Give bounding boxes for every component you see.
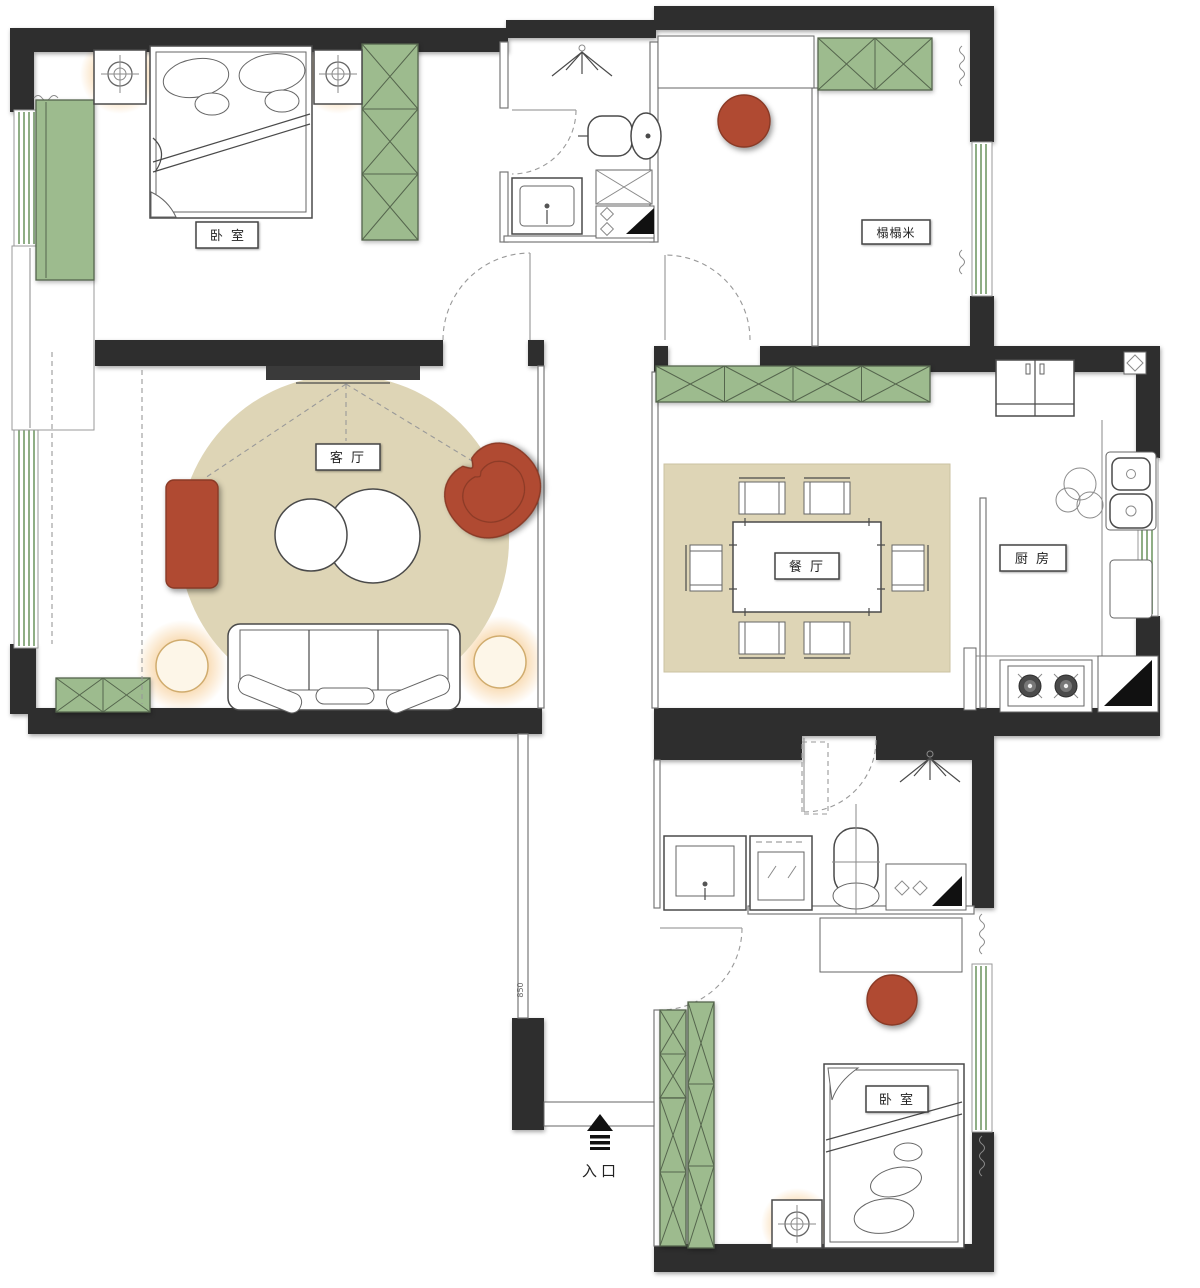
drain-cabinet bbox=[886, 864, 966, 910]
wardrobe-bedroom2-b bbox=[688, 1002, 714, 1248]
dining-chair bbox=[804, 622, 850, 658]
stove bbox=[1000, 660, 1092, 712]
stool-red bbox=[718, 95, 770, 147]
room-bedroom-master: 卧 室 bbox=[94, 46, 362, 248]
room-bathroom-top bbox=[512, 45, 661, 238]
svg-text:卧 室: 卧 室 bbox=[879, 1092, 915, 1108]
window-tatami-right bbox=[972, 142, 992, 296]
tv bbox=[266, 366, 420, 380]
wardrobe-bedroom2-a bbox=[660, 1010, 686, 1098]
floor-plan-svg: 卧 室 bbox=[0, 0, 1200, 1288]
pouf bbox=[474, 636, 526, 688]
dining-chair bbox=[739, 622, 785, 658]
door-study-nook bbox=[665, 255, 750, 340]
door-bedroom-second bbox=[660, 928, 742, 1010]
door-bathroom-top bbox=[512, 110, 576, 174]
fridge bbox=[996, 360, 1074, 416]
plant bbox=[1056, 468, 1103, 518]
room-label-tatami: 榻榻米 bbox=[862, 220, 930, 244]
door-bathroom-bottom bbox=[804, 738, 876, 812]
desk bbox=[658, 36, 814, 88]
cabinet-dining-top bbox=[656, 366, 930, 402]
dining-chair bbox=[686, 545, 722, 591]
svg-text:卧 室: 卧 室 bbox=[210, 228, 246, 244]
cabinet-tatami-top bbox=[818, 38, 932, 90]
room-living: 客 厅 bbox=[52, 352, 558, 716]
stool-red bbox=[867, 975, 917, 1025]
room-label-kitchen: 厨 房 bbox=[1000, 545, 1066, 571]
cutting-board bbox=[1110, 560, 1152, 618]
bathroom-cabinet bbox=[596, 170, 652, 204]
window-bedroom2-right bbox=[972, 964, 992, 1132]
floor-drain-unit bbox=[1098, 656, 1158, 712]
svg-text:客 厅: 客 厅 bbox=[330, 450, 366, 466]
kitchen-counter bbox=[970, 420, 1102, 656]
room-kitchen: 厨 房 bbox=[964, 352, 1158, 712]
cabinet-master-column bbox=[362, 44, 418, 240]
burner-icon bbox=[1018, 674, 1042, 698]
kitchen-sink bbox=[1106, 452, 1156, 530]
window-left-top bbox=[14, 110, 38, 246]
vanity-sink bbox=[664, 836, 746, 910]
room-label-bedroom-second: 卧 室 bbox=[866, 1086, 928, 1112]
svg-text:榻榻米: 榻榻米 bbox=[876, 226, 915, 240]
door-bedroom-master bbox=[443, 253, 530, 340]
floor-drain-unit bbox=[596, 206, 654, 238]
room-dining: 餐 厅 bbox=[664, 464, 950, 672]
wall-stub bbox=[964, 648, 976, 710]
bench-red bbox=[166, 480, 218, 588]
dining-chair bbox=[739, 478, 785, 514]
corridor-dimension: 850 bbox=[516, 982, 525, 997]
cabinet-living-corner bbox=[56, 678, 150, 712]
sofa bbox=[228, 624, 460, 716]
bed-double bbox=[150, 46, 312, 218]
shower-icon bbox=[552, 45, 612, 76]
coffee-table-small bbox=[275, 499, 347, 571]
window-left-bottom bbox=[14, 428, 38, 648]
wardrobe-bedroom2-c bbox=[660, 1098, 686, 1246]
svg-text:餐 厅: 餐 厅 bbox=[789, 559, 825, 575]
dining-chair bbox=[892, 545, 928, 591]
bathroom-sink bbox=[512, 178, 582, 234]
toilet bbox=[578, 113, 661, 159]
insulation-squiggle bbox=[960, 46, 965, 86]
entrance-label: 入口 bbox=[582, 1162, 620, 1180]
wardrobe-master-left bbox=[36, 100, 94, 280]
water-heater bbox=[832, 804, 880, 914]
insulation-squiggle bbox=[960, 250, 965, 274]
desk bbox=[820, 918, 962, 972]
vent bbox=[1124, 352, 1146, 374]
pouf bbox=[156, 640, 208, 692]
duct bbox=[802, 742, 828, 814]
room-label-bedroom-master: 卧 室 bbox=[196, 222, 258, 248]
room-bathroom-bottom bbox=[664, 742, 966, 914]
room-label-dining: 餐 厅 bbox=[775, 553, 839, 579]
burner-icon bbox=[1054, 674, 1078, 698]
svg-text:厨 房: 厨 房 bbox=[1015, 551, 1051, 567]
washing-machine bbox=[750, 836, 812, 910]
dining-chair bbox=[804, 478, 850, 514]
floor-plan: 卧 室 bbox=[0, 0, 1200, 1288]
room-label-living: 客 厅 bbox=[316, 444, 380, 470]
insulation-squiggle bbox=[980, 914, 985, 954]
